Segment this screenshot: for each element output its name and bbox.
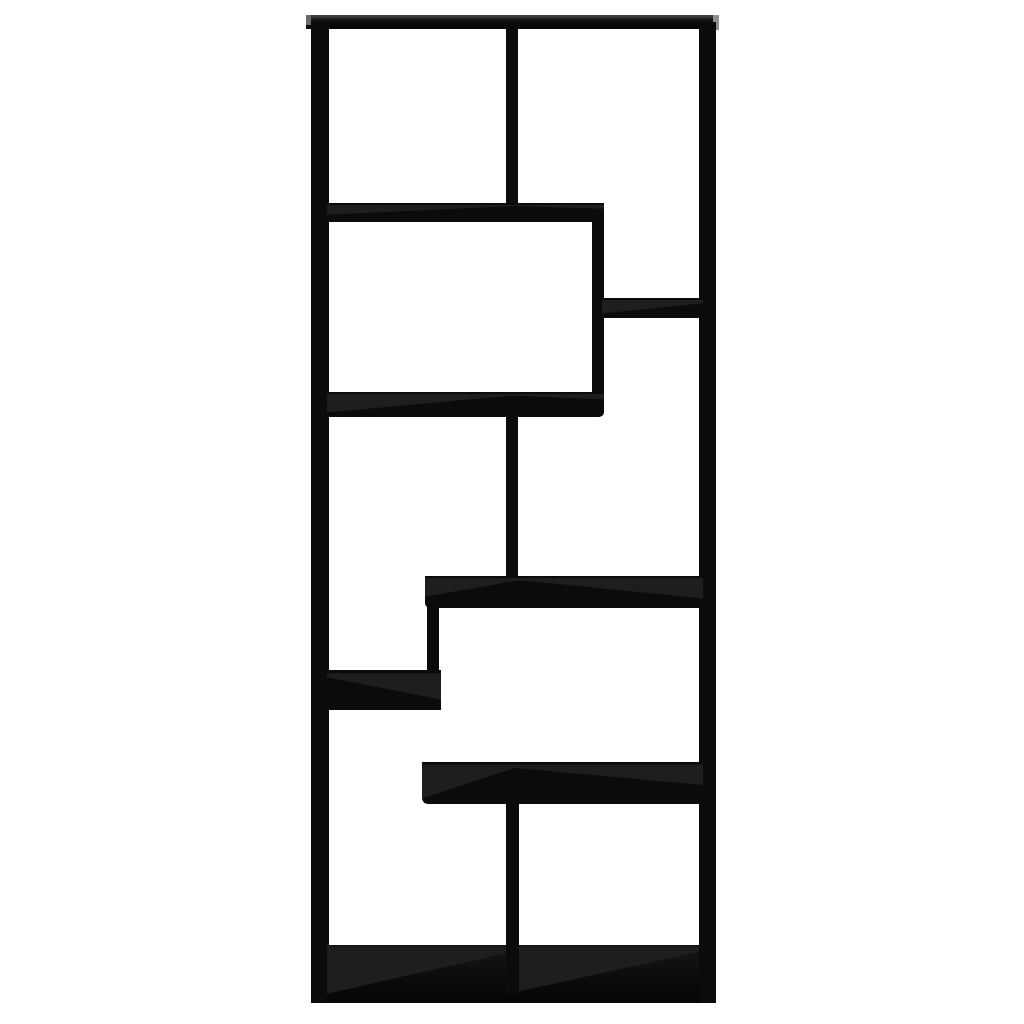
bottom-panel-right-surface <box>518 945 699 1003</box>
bottom-panel-right-surface-surface <box>518 945 699 1003</box>
shelf-f <box>422 762 703 804</box>
shelf-b-surface <box>602 298 703 318</box>
shelf-a <box>327 203 604 222</box>
mid-center-divider <box>506 415 518 578</box>
shelf-e-surface <box>327 670 441 710</box>
shelf-a-surface <box>327 203 604 222</box>
right-side-panel <box>699 22 716 1003</box>
top-center-divider <box>506 28 518 204</box>
bottom-panel-left-surface-surface <box>327 945 507 1003</box>
bottom-panel-left-surface <box>327 945 507 1003</box>
shelf-f-surface <box>422 762 703 804</box>
shelf-d-surface <box>425 576 703 608</box>
left-side-panel <box>311 22 329 1003</box>
top-rail <box>306 15 719 29</box>
shelf-b <box>602 298 703 318</box>
shelf-c <box>327 392 604 417</box>
bottom-center-divider <box>506 804 519 994</box>
shelf-d <box>425 576 703 608</box>
shelf-c-surface <box>327 392 604 417</box>
product-image-canvas <box>0 0 1024 1024</box>
shelf-e <box>327 670 441 710</box>
bookcase <box>0 0 1024 1024</box>
